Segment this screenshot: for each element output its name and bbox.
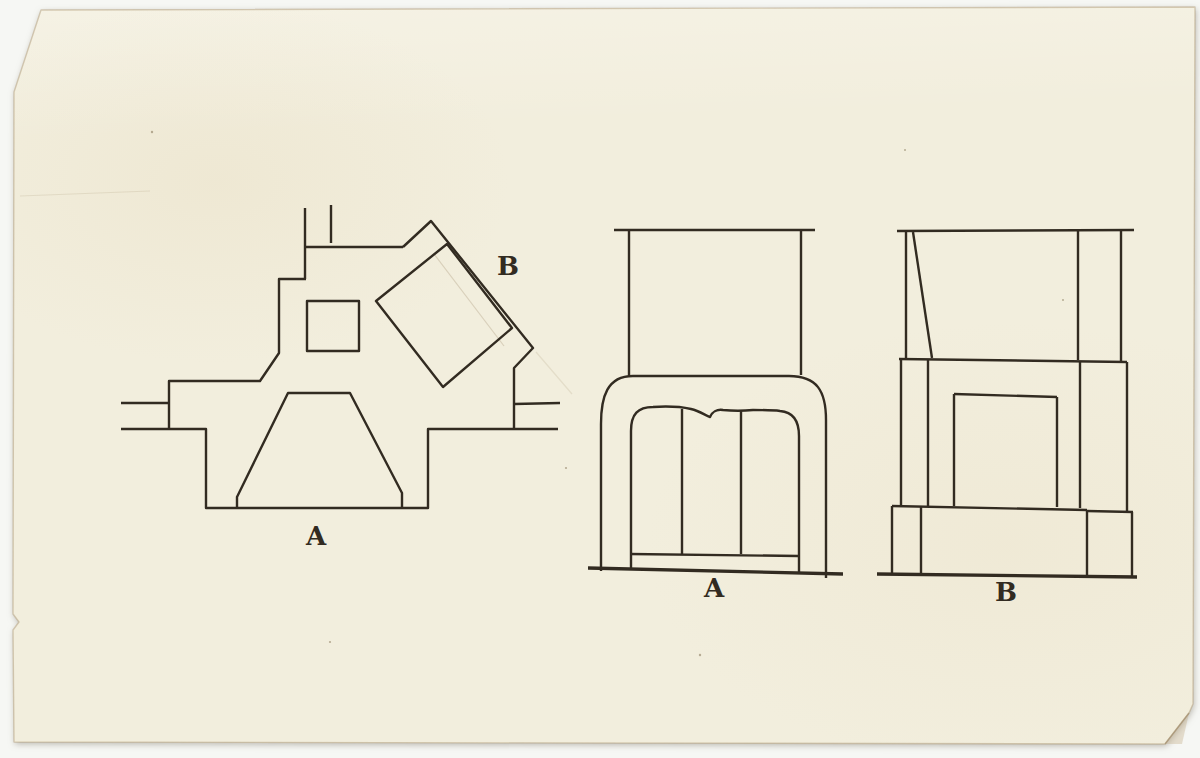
plan-label-b: B	[497, 253, 519, 279]
plan-label-a: A	[306, 523, 326, 549]
paper-shadow-wrap	[0, 0, 1200, 758]
scanned-drawing: B A A B	[0, 0, 1200, 758]
paper-sheet	[0, 0, 1200, 758]
elevation-a-label: A	[704, 575, 724, 601]
elevation-b-label: B	[995, 579, 1017, 605]
